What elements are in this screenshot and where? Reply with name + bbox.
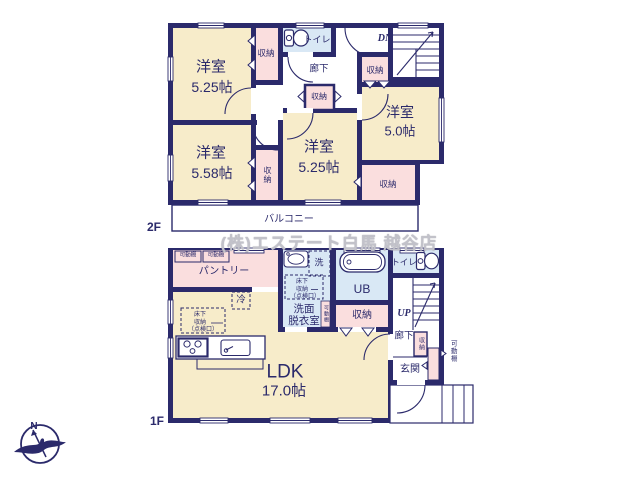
hall-2f-left: [256, 85, 283, 120]
toilet-icon-1f: [417, 253, 439, 270]
room-size-2f-yoshitsu-c: 5.25帖: [298, 160, 339, 174]
shelf-label-b: 可動棚: [208, 253, 225, 259]
closet-label-2f-d: 収納: [379, 180, 396, 189]
compass-icon: [14, 425, 66, 463]
balcony-label: バルコニー: [264, 215, 314, 225]
closet-label-2f-c: 収納: [263, 166, 271, 184]
floor-label-2f: 2F: [147, 221, 161, 233]
entrance-label: 玄関: [400, 365, 420, 375]
closet-label-2f-a: 収納: [257, 49, 274, 58]
closet-label-1f-a: 収納: [352, 311, 372, 321]
stairs-down-label: DN: [378, 34, 392, 44]
toilet-label-2f: トイレ: [303, 36, 330, 45]
bath-label: UB: [354, 283, 371, 295]
closet-label-1f-b: 収納: [418, 337, 424, 351]
room-2f-yoshitsu-b: [173, 125, 251, 200]
underfloor-ldk-l3: （点検口）: [188, 327, 218, 333]
room-size-2f-yoshitsu-a: 5.25帖: [191, 80, 232, 94]
room-label-2f-yoshitsu-a: 洋室: [196, 60, 226, 75]
room-label-2f-yoshitsu-b: 洋室: [196, 146, 226, 161]
room-2f-yoshitsu-c: [283, 113, 357, 200]
washer-label: 洗: [314, 259, 323, 268]
room-size-2f-yoshitsu-d: 5.0帖: [384, 125, 415, 138]
ldk-size: 17.0帖: [262, 384, 306, 399]
underfloor-wash-l1: 床下: [296, 279, 308, 285]
washroom-label-l2: 脱衣室: [288, 316, 320, 327]
hallway-label-2f: 廊下: [309, 64, 328, 74]
room-size-2f-yoshitsu-b: 5.58帖: [191, 166, 232, 180]
underfloor-ldk-l1: 床下: [194, 312, 206, 318]
watermark-text: (株)エステート白馬 越谷店: [179, 229, 479, 254]
hallway-label-1f: 廊下: [394, 331, 413, 341]
sink-icon: [221, 340, 250, 356]
entrance-porch: [390, 385, 473, 423]
shoe-cabinet: [428, 348, 439, 380]
compass-north-label: N: [30, 422, 37, 432]
underfloor-wash-l2: 収納: [296, 287, 308, 293]
stairs-up-label: UP: [397, 309, 410, 319]
closet-label-2f-b: 収納: [366, 66, 383, 75]
floor-label-1f: 1F: [150, 415, 164, 427]
toilet-label-1f: トイレ: [391, 258, 417, 267]
ldk-label: LDK: [267, 363, 304, 382]
floorplan-page: (株)エステート白馬 越谷店 洋室 5.25帖 収納 トイレ 廊下 DN 収納 …: [0, 0, 640, 480]
fridge-label: 冷: [236, 295, 246, 305]
shelf-label-outside: 可動棚: [449, 340, 456, 363]
shelf-label-strip: 可動棚: [323, 305, 328, 323]
washroom-label-l1: 洗面: [294, 304, 315, 315]
underfloor-ldk-l2: 収納: [194, 320, 206, 326]
closet-label-2f-small: 収納: [311, 93, 327, 101]
room-label-2f-yoshitsu-d: 洋室: [386, 105, 414, 119]
bathtub-icon: [340, 252, 385, 272]
room-label-2f-yoshitsu-c: 洋室: [304, 140, 334, 155]
shelf-label-a: 可動棚: [180, 253, 197, 259]
underfloor-wash-l3: （点検口）: [290, 294, 320, 300]
pantry-label: パントリー: [199, 267, 250, 277]
